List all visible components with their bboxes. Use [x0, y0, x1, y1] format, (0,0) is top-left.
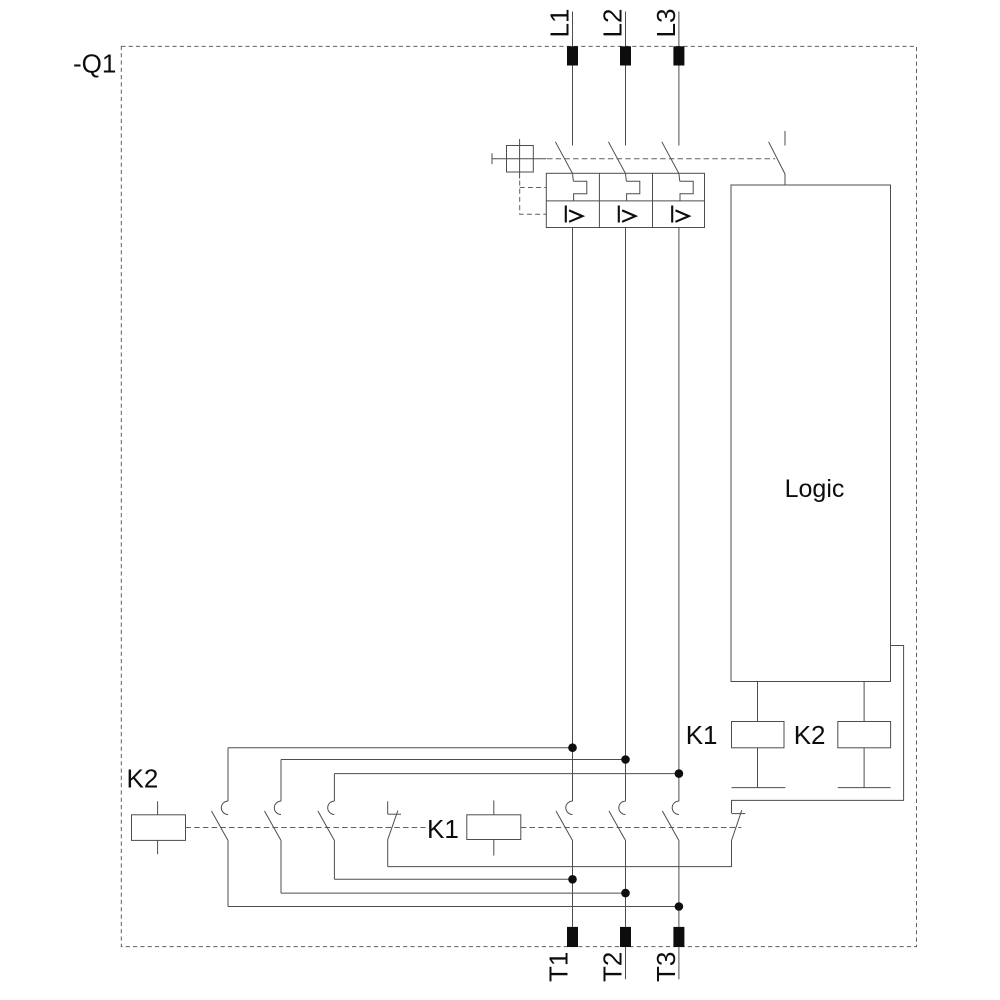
svg-text:Logic: Logic	[785, 475, 845, 503]
svg-text:L3: L3	[651, 9, 681, 38]
svg-text:K1: K1	[686, 720, 718, 750]
svg-text:T3: T3	[651, 952, 681, 982]
svg-text:T1: T1	[544, 952, 574, 982]
svg-text:K2: K2	[794, 720, 826, 750]
svg-text:L2: L2	[598, 9, 628, 38]
svg-text:-Q1: -Q1	[73, 48, 116, 78]
svg-text:K1: K1	[427, 814, 459, 844]
svg-text:K2: K2	[127, 764, 159, 794]
svg-text:L1: L1	[544, 9, 574, 38]
svg-text:T2: T2	[598, 952, 628, 982]
